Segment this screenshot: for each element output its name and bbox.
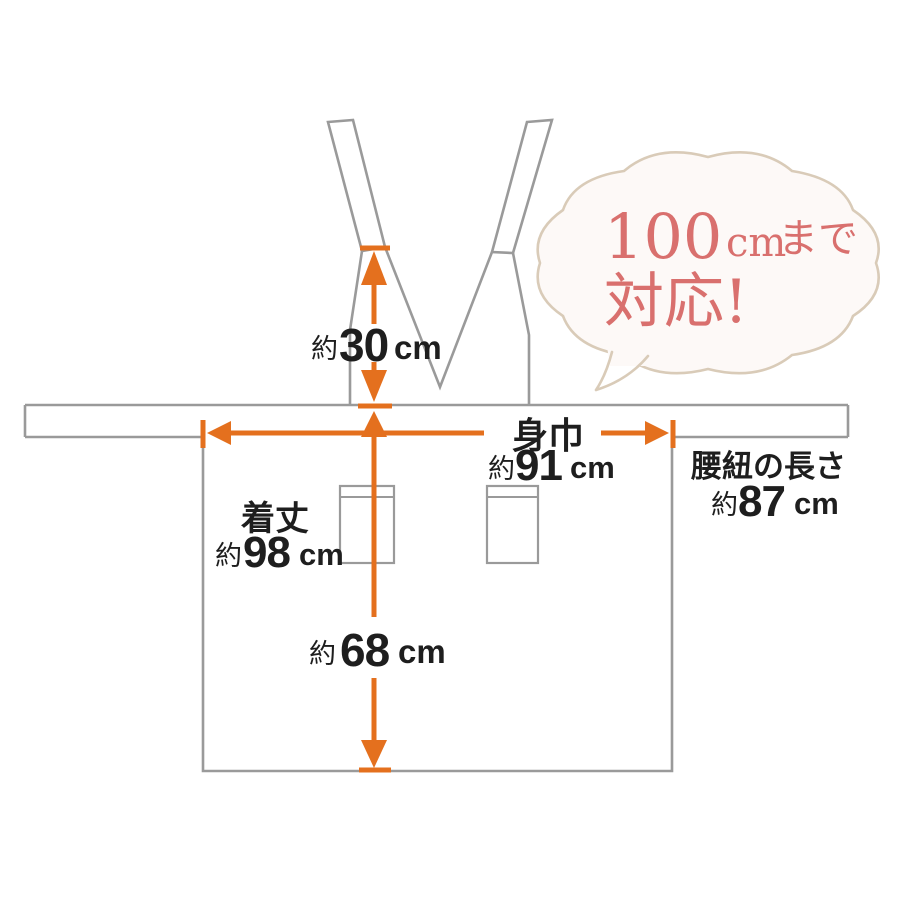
- length-unit: cm: [299, 537, 344, 572]
- length-value: 98: [243, 528, 290, 577]
- apron-body: [203, 437, 672, 771]
- bubble-line2: 対応!: [604, 267, 748, 337]
- speech-bubble-tail-gap: [606, 340, 654, 366]
- bib-right-edge: [513, 253, 529, 405]
- right-pocket: [487, 486, 538, 563]
- apron-size-diagram: 約 30 cm 身巾 約 91 cm 着丈 約 98 cm 約 68: [0, 0, 900, 900]
- skirt-drop-label: 約 68 cm: [309, 624, 446, 676]
- left-shoulder-strap: [328, 120, 385, 251]
- diagram-svg: 約 30 cm 身巾 約 91 cm 着丈 約 98 cm 約 68: [0, 0, 900, 900]
- skirt-drop-arrow-up: [361, 411, 387, 437]
- body-width-arrow-right: [645, 421, 669, 445]
- waist-tie-unit: cm: [794, 486, 839, 521]
- dimension-skirt-drop: [359, 411, 391, 770]
- waist-tie-value: 87: [738, 477, 785, 526]
- neck-drop-approx: 約: [311, 334, 338, 364]
- bubble-suffix: まで: [778, 216, 858, 262]
- speech-bubble: 100 cm まで 対応!: [538, 152, 879, 390]
- skirt-drop-value: 68: [340, 624, 390, 676]
- waist-tie-approx: 約: [711, 490, 738, 520]
- neck-drop-value: 30: [339, 319, 388, 371]
- length-label: 着丈 約 98 cm: [215, 500, 344, 577]
- left-pocket: [340, 486, 394, 563]
- bubble-number: 100: [604, 200, 722, 273]
- waist-tie-label: 腰紐の長さ 約 87 cm: [691, 449, 846, 526]
- body-width-arrow-left: [207, 421, 231, 445]
- body-width-value: 91: [515, 441, 562, 490]
- skirt-drop-approx: 約: [309, 639, 336, 669]
- neck-drop-unit: cm: [394, 329, 442, 366]
- skirt-drop-unit: cm: [398, 633, 446, 670]
- body-width-unit: cm: [570, 450, 615, 485]
- neck-drop-label: 約 30 cm: [311, 319, 442, 371]
- neck-drop-arrow-up: [361, 251, 387, 285]
- skirt-drop-arrow-down: [361, 740, 387, 768]
- neckline-v: [385, 247, 492, 387]
- body-width-label: 身巾 約 91 cm: [488, 415, 615, 490]
- length-approx: 約: [215, 541, 242, 571]
- dimension-body-width: [203, 420, 673, 448]
- body-width-approx: 約: [488, 454, 515, 484]
- neck-drop-arrow-down: [361, 370, 387, 402]
